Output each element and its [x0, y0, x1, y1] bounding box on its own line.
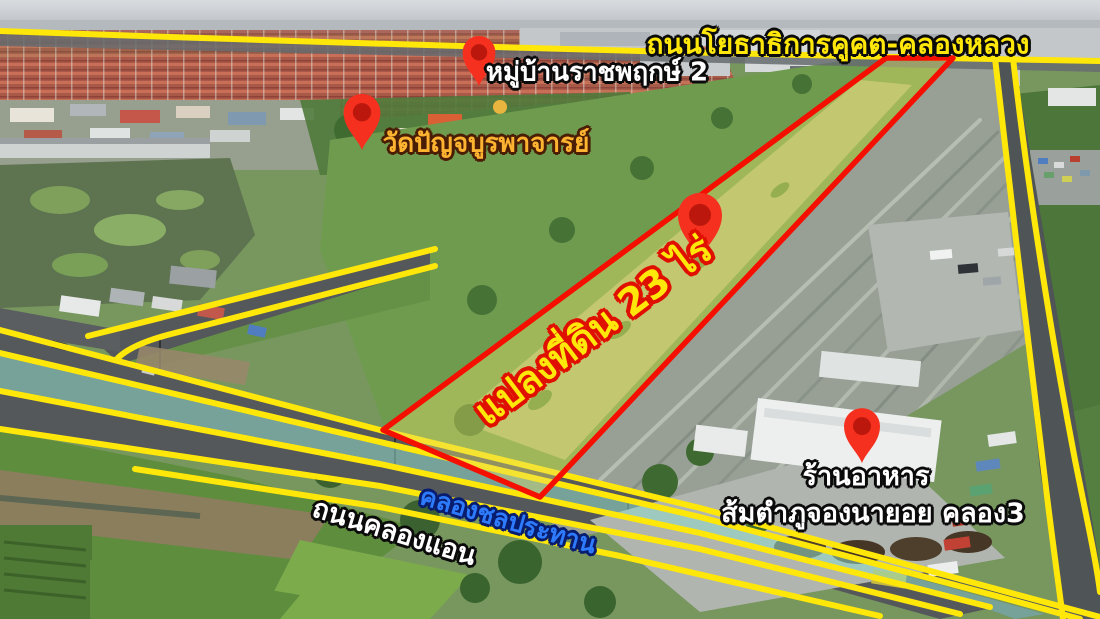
label-restaurant-line2: ส้มตำภูจองนายอย คลอง3 — [721, 500, 1025, 528]
label-temple: วัดปัญจบูรพาจารย์ — [383, 130, 590, 157]
label-village: หมู่บ้านราชพฤกษ์ 2 — [486, 59, 708, 86]
car — [930, 249, 953, 260]
temple-stupa — [493, 100, 507, 114]
annotated-aerial-photo: ถนนโยธาธิการคูคต-คลองหลวง หมู่บ้านราชพฤก… — [0, 0, 1100, 619]
label-restaurant-line1: ร้านอาหาร — [803, 463, 930, 491]
label-top-road: ถนนโยธาธิการคูคต-คลองหลวง — [647, 29, 1030, 58]
